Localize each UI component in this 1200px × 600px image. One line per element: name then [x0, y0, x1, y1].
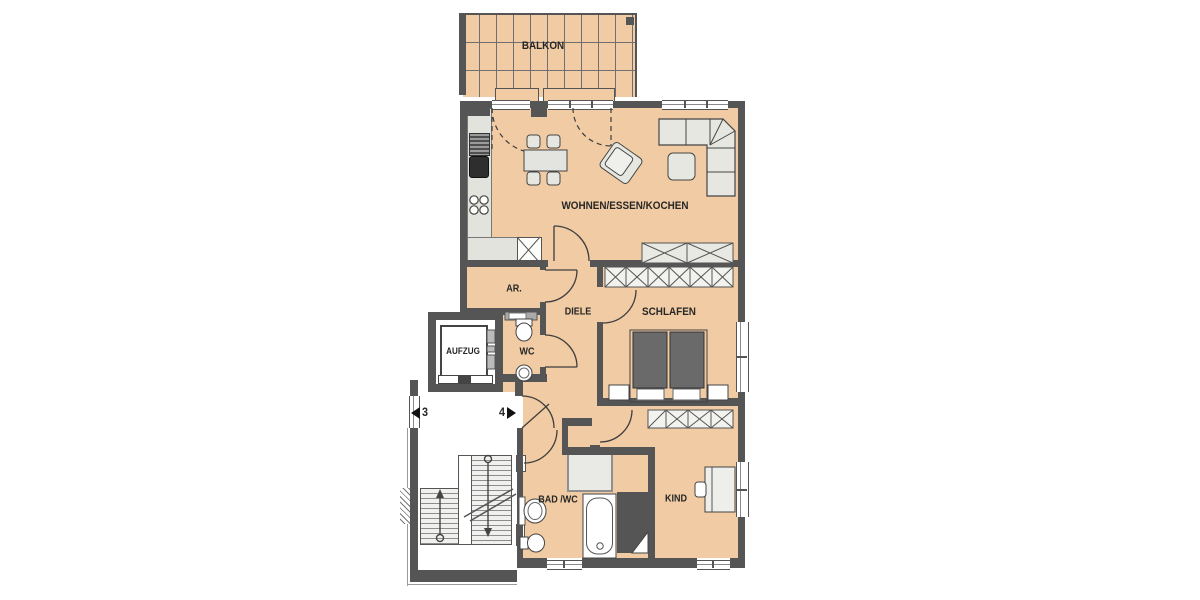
unit-arrow-right-icon: [507, 407, 516, 419]
shower: [567, 452, 613, 492]
balcony-drain: [626, 17, 634, 25]
wall-exterior-right: [738, 392, 745, 462]
window-living: [662, 100, 728, 110]
wall-schlafen-bottom: [597, 398, 738, 406]
wall-exterior-left: [460, 101, 467, 315]
window-mullion: [591, 100, 593, 108]
balcony-left-wall: [459, 13, 466, 95]
wall-bad-top: [562, 447, 655, 455]
window-mullion: [684, 100, 686, 108]
wall-exterior-right: [738, 101, 745, 322]
kitchen-sink: [469, 156, 489, 178]
window-mullion: [736, 356, 747, 358]
window-mullion: [563, 560, 565, 568]
floor-plan: BALKON WOHNEN/ESSEN/KOCHEN AR. DIELE WC …: [0, 0, 1200, 600]
balcony-deck: [463, 13, 637, 97]
wall-schlafen-left: [597, 322, 603, 400]
wall-corridor: [562, 418, 592, 426]
wall-ar-wc: [460, 308, 546, 315]
wall-wc-right: [540, 302, 546, 335]
unit-number-right: 4: [499, 405, 505, 419]
room-label-balkon: BALKON: [522, 40, 564, 52]
room-label-diele: DIELE: [565, 307, 592, 318]
room-label-kind: KIND: [665, 494, 687, 505]
wall-entry-stub: [515, 380, 523, 396]
dishwasher: [469, 133, 490, 156]
wall-exterior-top: [613, 101, 662, 108]
stair-stringer: [458, 455, 472, 545]
stairwell-wall: [410, 570, 517, 582]
window-balcony-door: [548, 100, 613, 110]
wall-stub: [540, 263, 546, 270]
wall-exterior-bottom: [582, 558, 697, 568]
window-mullion: [569, 100, 571, 108]
wall-kitchen-ar: [460, 260, 548, 267]
room-label-schlafen: SCHLAFEN: [642, 306, 696, 318]
unit-arrow-left-icon: [411, 407, 420, 419]
wall-kind-left: [648, 447, 655, 558]
party-wall-hatch: [400, 488, 410, 524]
unit-number-left: 3: [422, 405, 428, 419]
room-label-wc: WC: [519, 347, 534, 358]
stairwell-wall: [410, 428, 418, 570]
room-label-wohnen: WOHNEN/ESSEN/KOCHEN: [561, 200, 688, 212]
stairwell-wall: [410, 380, 418, 396]
wall-schlafen-top: [590, 260, 738, 267]
stair-flight-up: [420, 488, 460, 545]
room-label-bad: BAD /WC: [538, 495, 578, 506]
wall-schlafen-left: [597, 263, 603, 287]
window-mullion: [706, 100, 708, 108]
stair-flight-down: [470, 455, 512, 545]
window-mullion: [736, 489, 747, 491]
window-mullion: [712, 560, 714, 568]
wall-exterior-bottom: [730, 558, 745, 568]
room-label-aufzug: AUFZUG: [446, 346, 480, 356]
wall-wc-bottom: [503, 374, 547, 382]
wall-corner-block: [460, 101, 490, 116]
wall-apartment-left: [517, 428, 523, 568]
room-label-ar: AR.: [506, 284, 522, 295]
wall-pier-block: [531, 103, 547, 117]
duct-shaft: [617, 492, 648, 553]
elevator-door: [458, 376, 471, 383]
window-balcony-door: [492, 100, 530, 110]
stairwell-outline: [407, 584, 517, 585]
